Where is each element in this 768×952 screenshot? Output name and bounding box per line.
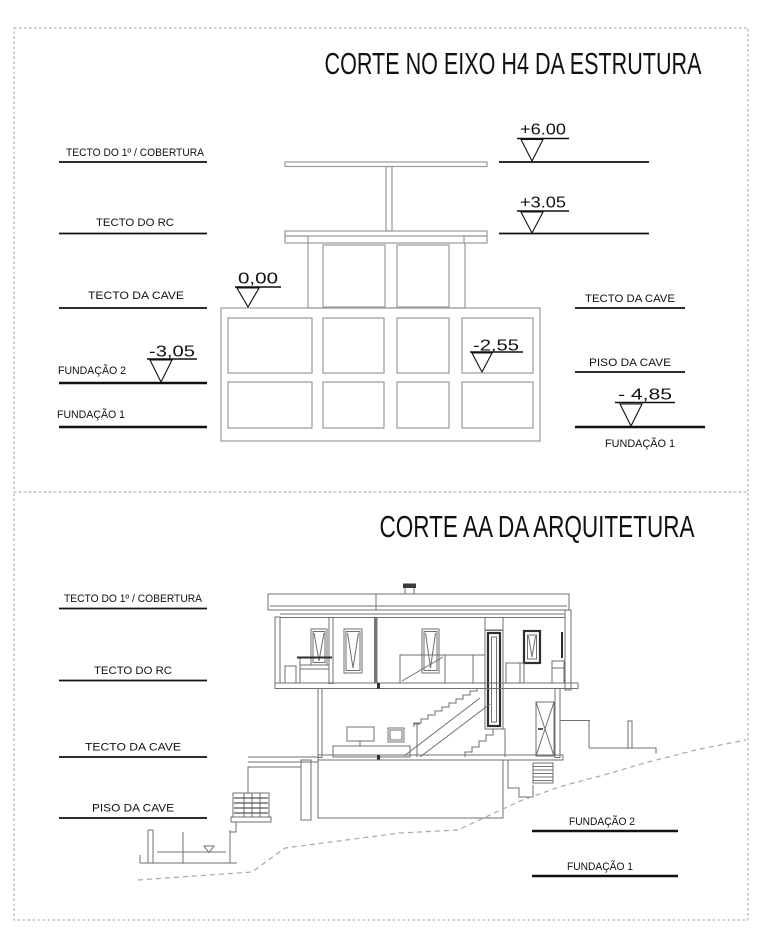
outdoor-stair-wall [508, 760, 533, 797]
right-exterior [508, 721, 656, 798]
level-label: TECTO DO 1º / COBERTURA [66, 147, 205, 159]
floor-slab [275, 683, 578, 689]
bed [400, 655, 485, 683]
elevation-triangle-icon [472, 353, 492, 372]
level-label: TECTO DO RC [96, 217, 174, 229]
toilet [552, 661, 564, 683]
structure-drawing [221, 162, 540, 441]
entry-door [536, 702, 554, 756]
level-label: PISO DA CAVE [589, 357, 671, 369]
chimney-cap [403, 584, 416, 589]
right-wall [555, 689, 560, 758]
elevation-value: 0,00 [238, 271, 278, 288]
level-label: FUNDAÇÃO 2 [569, 815, 635, 828]
elevation-value: -3,05 [149, 344, 195, 361]
retaining-wall [301, 760, 311, 820]
fence-post [628, 721, 632, 748]
ground-floor [318, 688, 560, 758]
terrain-line [138, 740, 746, 880]
drawing-sheet: CORTE NO EIXO H4 DA ESTRUTURA [0, 0, 768, 952]
roof [268, 584, 569, 611]
structure-title: CORTE NO EIXO H4 DA ESTRUTURA [325, 46, 702, 81]
living-room-furniture [333, 724, 420, 757]
right-wall [565, 610, 571, 690]
structure-section: CORTE NO EIXO H4 DA ESTRUTURA [57, 46, 705, 450]
architecture-title: CORTE AA DA ARQUITETURA [380, 509, 695, 544]
stair-tall-window [485, 630, 503, 729]
interior-wall [374, 618, 378, 684]
outdoor-stairs [533, 763, 553, 783]
threshold-mark [377, 683, 380, 689]
elevation-value: +6.00 [520, 122, 566, 139]
architecture-section: CORTE AA DA ARQUITETURA TECTO DO 1º / CO… [59, 509, 746, 880]
basement-box [318, 760, 503, 818]
elevation-triangle-icon [237, 288, 259, 307]
armchair [506, 663, 524, 683]
elevation-triangle-icon [521, 212, 543, 233]
upper-wall [308, 243, 465, 308]
level-label: PISO DA CAVE [92, 803, 174, 815]
elevation-triangle-icon [521, 140, 543, 162]
window-dark [524, 631, 540, 663]
window [344, 629, 362, 673]
chimney [405, 587, 414, 594]
elevation-value: - 4,85 [618, 387, 672, 404]
staircase [404, 688, 505, 757]
elevation-triangle-icon [150, 360, 172, 382]
level-label: TECTO DA CAVE [585, 293, 675, 305]
pool [140, 822, 237, 863]
house-section-drawing [138, 584, 746, 881]
column [386, 167, 392, 232]
level-label: FUNDAÇÃO 1 [605, 437, 675, 450]
left-wall [275, 617, 280, 683]
blueprint-canvas: CORTE NO EIXO H4 DA ESTRUTURA [0, 0, 768, 952]
level-label: FUNDAÇÃO 2 [58, 364, 126, 377]
basement-box [221, 308, 540, 441]
level-label: FUNDAÇÃO 1 [567, 860, 633, 873]
structure-panel-border [14, 28, 748, 492]
window [422, 629, 439, 673]
architecture-right-levels: FUNDAÇÃO 2 FUNDAÇÃO 1 [532, 815, 678, 876]
first-floor-slab [285, 231, 487, 236]
level-label: TECTO DA CAVE [85, 742, 181, 754]
window [311, 629, 327, 665]
architecture-panel-border [14, 492, 748, 920]
half-wall [413, 724, 420, 757]
elevation-value: +3.05 [520, 195, 566, 212]
level-label: TECTO DA CAVE [88, 290, 184, 302]
level-label: TECTO DO RC [94, 665, 172, 677]
first-floor [275, 610, 571, 729]
elevation-triangle-icon [620, 404, 642, 426]
grate [231, 793, 271, 822]
level-label: FUNDAÇÃO 1 [57, 408, 125, 421]
roof-slab [285, 162, 487, 167]
left-wall [318, 689, 322, 758]
architecture-left-levels: TECTO DO 1º / COBERTURA TECTO DO RC TECT… [59, 593, 207, 818]
elevation-markers: +6.00 +3.05 0,00 -2,55 -3,05 - 4,85 [147, 122, 675, 427]
structure-left-levels: TECTO DO 1º / COBERTURA TECTO DO RC TECT… [57, 147, 207, 427]
level-label: TECTO DO 1º / COBERTURA [64, 593, 203, 605]
tv [347, 727, 374, 741]
